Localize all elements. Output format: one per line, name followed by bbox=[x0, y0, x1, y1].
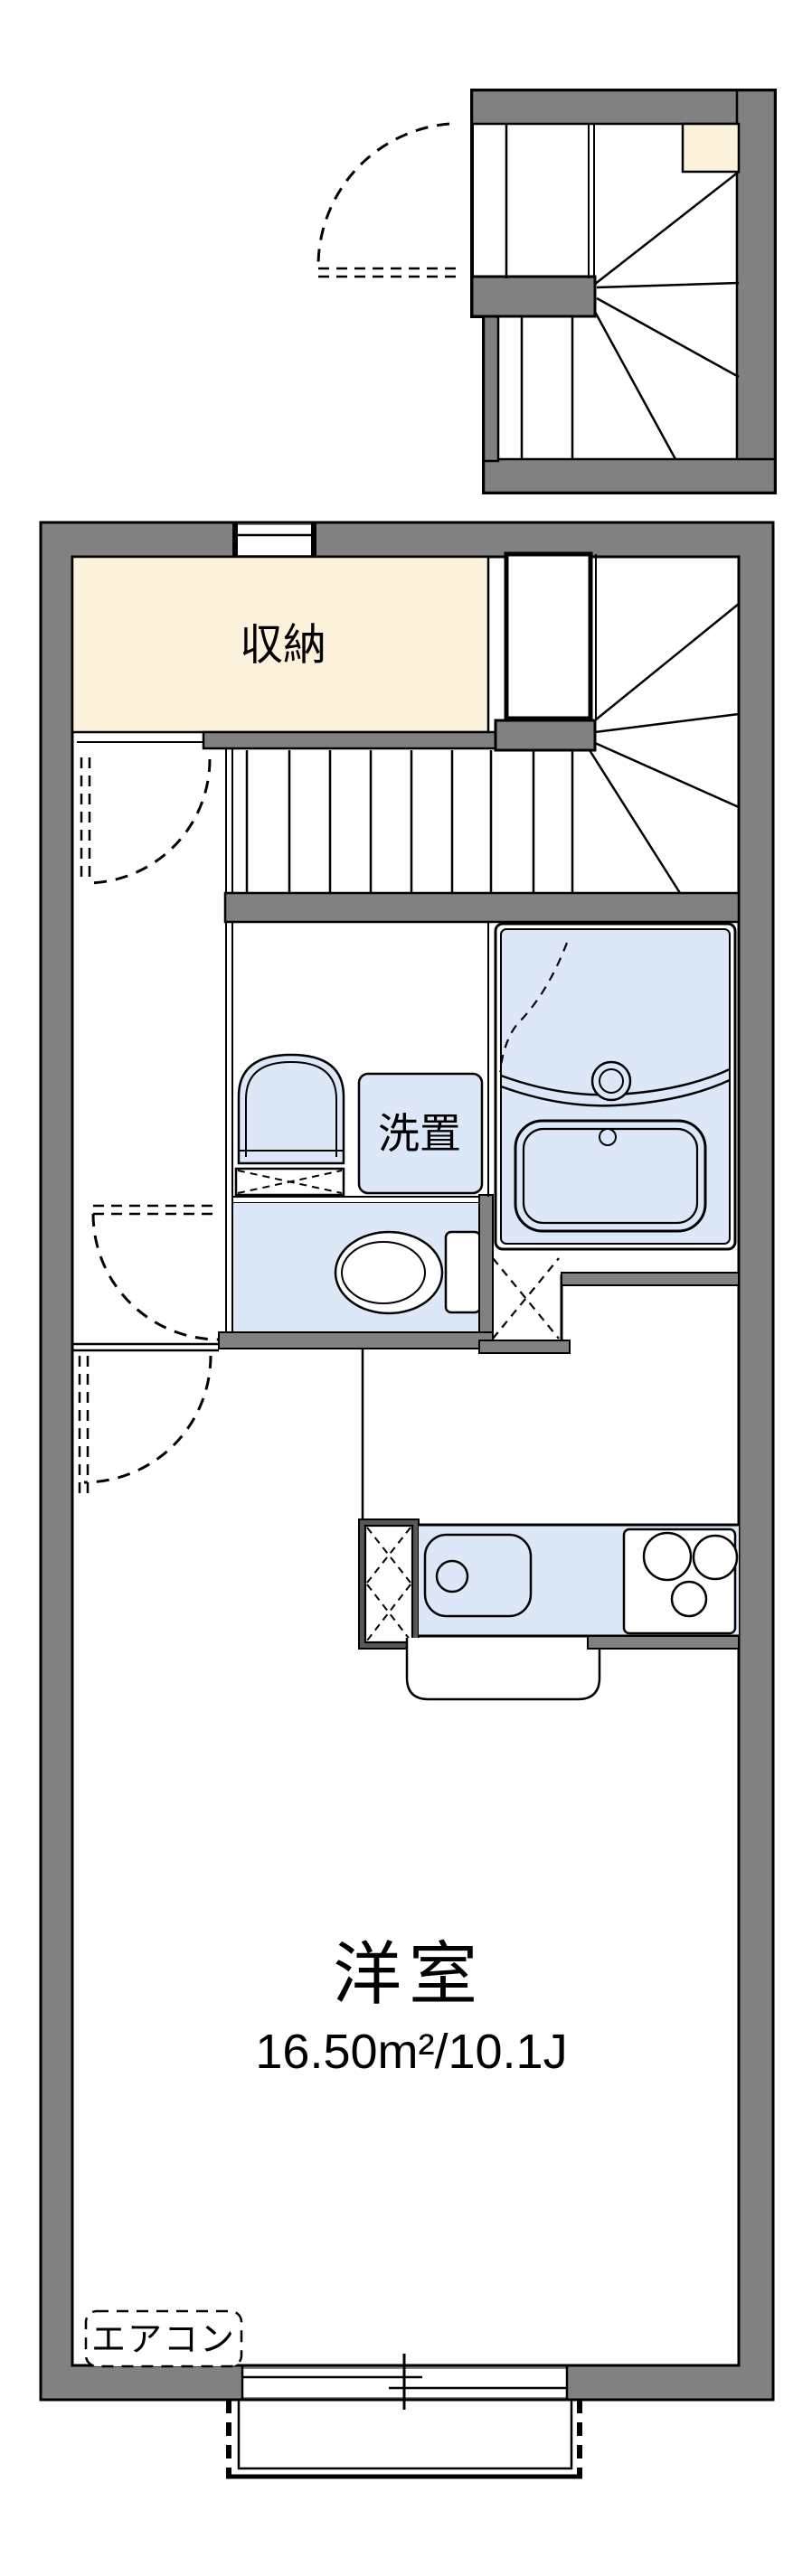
bottom-window bbox=[242, 2354, 567, 2410]
stair-bottom-wall bbox=[225, 893, 739, 922]
room-size-label: 16.50m²/10.1J bbox=[255, 2025, 567, 2079]
hall-door-middle-arc bbox=[93, 1214, 219, 1340]
staircase-wall-bottom bbox=[484, 459, 775, 493]
burner bbox=[644, 1533, 691, 1580]
balcony-inner-rail bbox=[239, 2400, 571, 2468]
room-label: 洋室 bbox=[333, 1937, 485, 2014]
fridge-space bbox=[365, 1526, 412, 1642]
staircase-wall-top bbox=[472, 90, 775, 124]
staircase-landing-pad bbox=[683, 124, 739, 172]
stair-upper-landing bbox=[506, 554, 590, 719]
storage-bottom-wall bbox=[203, 732, 508, 748]
kitchen-south-wall bbox=[588, 1636, 739, 1649]
toilet-bowl bbox=[335, 1232, 442, 1313]
top-window bbox=[232, 522, 316, 559]
entrance-door-arc bbox=[318, 124, 449, 268]
storage-label: 収納 bbox=[240, 622, 326, 670]
external-staircase bbox=[318, 90, 775, 493]
burner bbox=[694, 1536, 737, 1579]
balcony bbox=[226, 2400, 582, 2478]
staircase-wall-right bbox=[737, 90, 775, 493]
washbasin bbox=[239, 1055, 344, 1163]
sink-faucet bbox=[437, 1561, 467, 1592]
hall-door-middle bbox=[93, 1206, 219, 1340]
laundry-label: 洗置 bbox=[378, 1110, 461, 1157]
staircase-wall-left bbox=[484, 316, 498, 461]
counter-front bbox=[407, 1638, 600, 1699]
main-unit: 収納 bbox=[41, 522, 773, 2410]
toilet-room bbox=[219, 1195, 493, 1349]
room-door-arc bbox=[84, 1356, 211, 1482]
exterior-walls bbox=[41, 522, 773, 2400]
toilet-east-wall bbox=[479, 1195, 493, 1349]
room-door bbox=[80, 1356, 211, 1494]
staircase-newel-wall bbox=[472, 277, 595, 316]
entrance-door bbox=[318, 124, 459, 277]
bathroom bbox=[488, 922, 735, 1249]
aircon-label: エアコン bbox=[91, 2321, 236, 2359]
burner bbox=[672, 1582, 706, 1616]
hall-door-upper-arc bbox=[86, 759, 210, 883]
hall-door-upper bbox=[81, 757, 210, 883]
stair-newel-wall bbox=[496, 720, 595, 750]
western-room: 洋室 16.50m²/10.1J エアコン bbox=[86, 1937, 568, 2367]
pipe-space bbox=[479, 1258, 739, 1353]
floorplan-canvas: 収納 bbox=[0, 0, 812, 2576]
washroom: 洗置 bbox=[233, 1055, 482, 1203]
toilet-tank bbox=[446, 1232, 480, 1312]
toilet-bottom-wall bbox=[219, 1332, 493, 1349]
floorplan-page: 収納 bbox=[0, 0, 812, 2576]
bathtub-drain bbox=[600, 1129, 616, 1145]
kitchen bbox=[359, 1349, 739, 1699]
bath-south-wall bbox=[562, 1273, 739, 1285]
